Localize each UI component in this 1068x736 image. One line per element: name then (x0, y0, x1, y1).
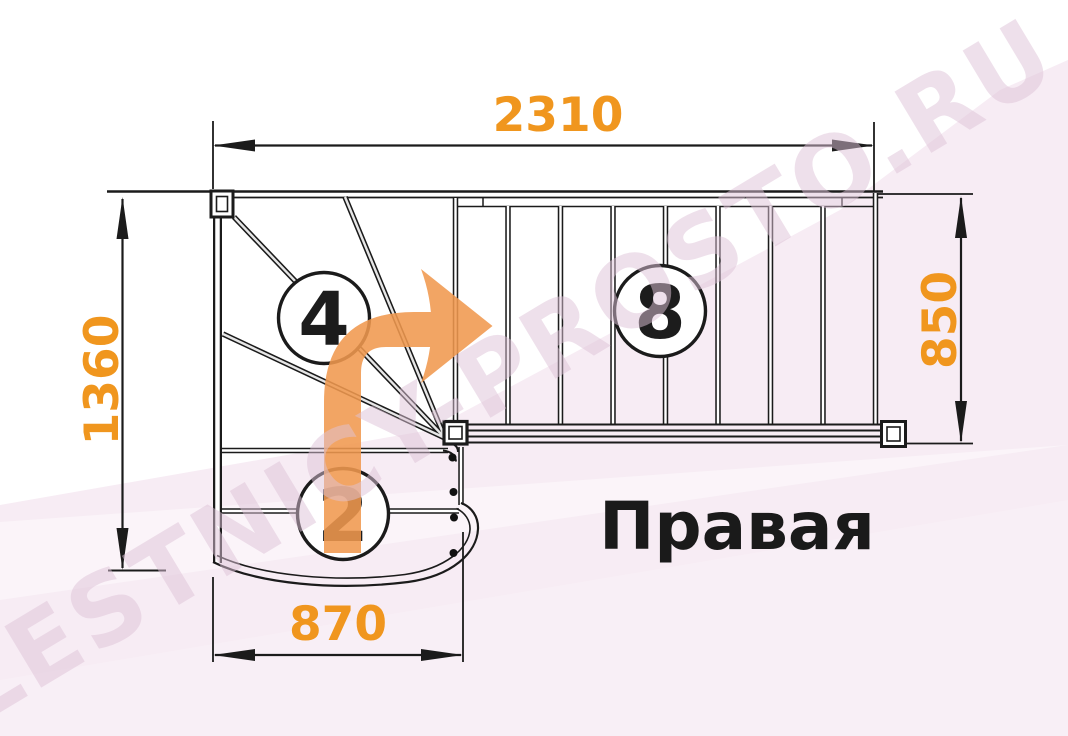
staircase-plan-diagram: 4 2 8 (0, 0, 1068, 736)
newel-post-top-left (211, 191, 233, 217)
dimension-bottom-value: 870 (289, 597, 387, 652)
dimension-top-value: 2310 (493, 88, 624, 143)
dimension-right-value: 850 (913, 271, 968, 369)
dimension-left-value: 1360 (75, 315, 130, 446)
variant-label: Правая (599, 488, 875, 565)
staircase-plan-page: 4 2 8 (0, 0, 1068, 736)
newel-post-right (882, 422, 906, 447)
